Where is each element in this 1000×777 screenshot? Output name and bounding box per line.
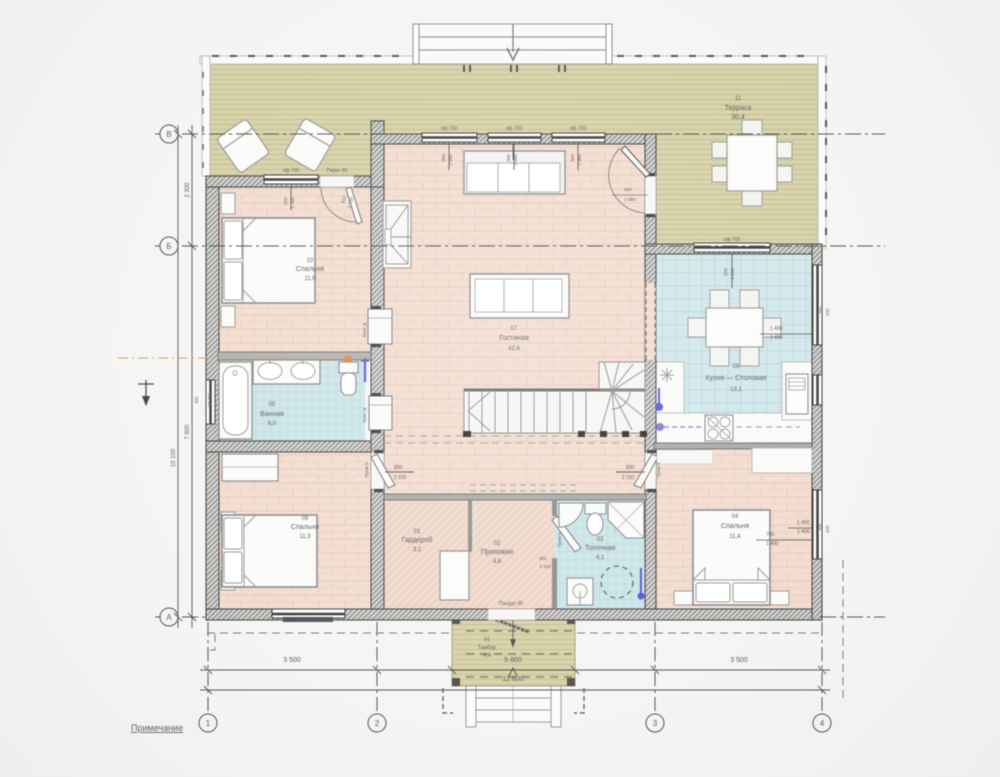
svg-text:Ванная: Ванная <box>260 411 284 418</box>
svg-text:Кухня — Столовая: Кухня — Столовая <box>706 375 767 382</box>
svg-text:600: 600 <box>825 308 830 316</box>
svg-text:800: 800 <box>626 465 635 471</box>
svg-text:01: 01 <box>414 529 421 535</box>
svg-text:900: 900 <box>570 154 575 162</box>
svg-text:1 400: 1 400 <box>770 326 783 332</box>
svg-text:2 300: 2 300 <box>185 182 191 198</box>
svg-text:01: 01 <box>484 637 490 643</box>
svg-text:2 080: 2 080 <box>624 197 636 202</box>
svg-text:10 100: 10 100 <box>171 448 177 467</box>
svg-text:900: 900 <box>818 523 823 531</box>
svg-text:Перег 80: Перег 80 <box>327 168 348 174</box>
svg-text:пф 700: пф 700 <box>724 237 741 243</box>
svg-text:950: 950 <box>283 197 288 205</box>
svg-text:900: 900 <box>506 154 511 162</box>
svg-text:пф 700: пф 700 <box>506 126 523 132</box>
svg-text:42,6: 42,6 <box>508 346 520 352</box>
svg-text:12 600: 12 600 <box>502 676 524 683</box>
svg-text:10: 10 <box>307 258 314 264</box>
svg-text:900: 900 <box>818 306 823 314</box>
svg-text:900: 900 <box>539 556 547 561</box>
svg-text:1 400: 1 400 <box>766 541 779 547</box>
svg-text:Спальня: Спальня <box>291 524 319 531</box>
svg-text:Прем 0: Прем 0 <box>364 462 369 478</box>
svg-text:700: 700 <box>766 532 775 538</box>
svg-text:Примечание: Примечание <box>131 723 183 733</box>
svg-text:2: 2 <box>375 719 380 728</box>
svg-text:2 080: 2 080 <box>448 154 453 166</box>
svg-text:Топочная: Топочная <box>585 545 616 552</box>
svg-text:06: 06 <box>733 364 740 370</box>
svg-text:4: 4 <box>820 719 825 728</box>
svg-text:Спальня: Спальня <box>721 523 749 530</box>
svg-text:11,9: 11,9 <box>304 276 316 282</box>
svg-text:11: 11 <box>735 96 742 102</box>
svg-text:900: 900 <box>194 396 199 404</box>
svg-text:02: 02 <box>494 541 501 547</box>
svg-text:13,1: 13,1 <box>730 387 742 393</box>
svg-text:2 100: 2 100 <box>622 475 635 481</box>
svg-text:2 080: 2 080 <box>577 154 582 166</box>
svg-text:30,4: 30,4 <box>731 114 745 121</box>
svg-text:Прихожая: Прихожая <box>481 549 514 556</box>
svg-text:3 500: 3 500 <box>283 657 301 664</box>
svg-text:В: В <box>166 130 171 139</box>
svg-text:600: 600 <box>825 525 830 533</box>
svg-text:900: 900 <box>723 268 728 276</box>
svg-text:2 080: 2 080 <box>513 154 518 166</box>
svg-text:Прем 0: Прем 0 <box>557 532 562 548</box>
svg-text:Терраса: Терраса <box>725 105 752 112</box>
svg-text:пф 700: пф 700 <box>441 126 458 132</box>
svg-text:4,4: 4,4 <box>483 653 491 659</box>
svg-text:Тамбур: Тамбур <box>478 645 497 651</box>
svg-text:пф 700: пф 700 <box>570 126 587 132</box>
svg-text:800: 800 <box>394 465 403 471</box>
svg-text:2 100: 2 100 <box>539 564 551 569</box>
svg-text:Гардероб: Гардероб <box>402 536 433 544</box>
svg-text:7 800: 7 800 <box>185 424 191 440</box>
svg-text:3: 3 <box>653 719 658 728</box>
svg-text:Пандус 90: Пандус 90 <box>499 601 523 607</box>
svg-text:5 800: 5 800 <box>504 657 522 664</box>
svg-text:1 760: 1 760 <box>290 197 295 209</box>
svg-text:Гостиная: Гостиная <box>499 335 529 342</box>
svg-text:Вент Д: Вент Д <box>362 323 367 337</box>
svg-text:2 080: 2 080 <box>730 268 735 280</box>
svg-text:4,8: 4,8 <box>493 559 502 565</box>
svg-text:1: 1 <box>206 719 211 728</box>
svg-text:11,4: 11,4 <box>729 534 741 540</box>
svg-text:11,3: 11,3 <box>299 534 311 540</box>
svg-text:08: 08 <box>302 516 309 522</box>
svg-text:Вент Д: Вент Д <box>362 408 367 422</box>
svg-text:2 100: 2 100 <box>394 475 407 481</box>
svg-text:пф 700: пф 700 <box>207 392 212 407</box>
svg-text:03: 03 <box>597 537 604 543</box>
svg-text:04: 04 <box>732 514 739 520</box>
svg-text:Прем 0: Прем 0 <box>656 462 661 478</box>
svg-text:1 400: 1 400 <box>797 520 810 526</box>
svg-text:пф 700: пф 700 <box>283 168 300 174</box>
svg-text:3 500: 3 500 <box>730 657 748 664</box>
svg-text:3,1: 3,1 <box>413 547 422 553</box>
svg-text:6,0: 6,0 <box>268 421 277 427</box>
svg-text:1 400: 1 400 <box>770 335 783 341</box>
svg-text:1 400: 1 400 <box>797 529 810 535</box>
svg-text:05: 05 <box>269 402 276 408</box>
svg-text:А: А <box>166 613 172 622</box>
svg-text:4,1: 4,1 <box>596 555 605 561</box>
svg-text:Б: Б <box>166 242 171 251</box>
svg-text:07: 07 <box>511 326 518 332</box>
svg-text:880: 880 <box>624 187 632 192</box>
svg-text:900: 900 <box>441 154 446 162</box>
svg-text:Спальня: Спальня <box>296 266 324 273</box>
